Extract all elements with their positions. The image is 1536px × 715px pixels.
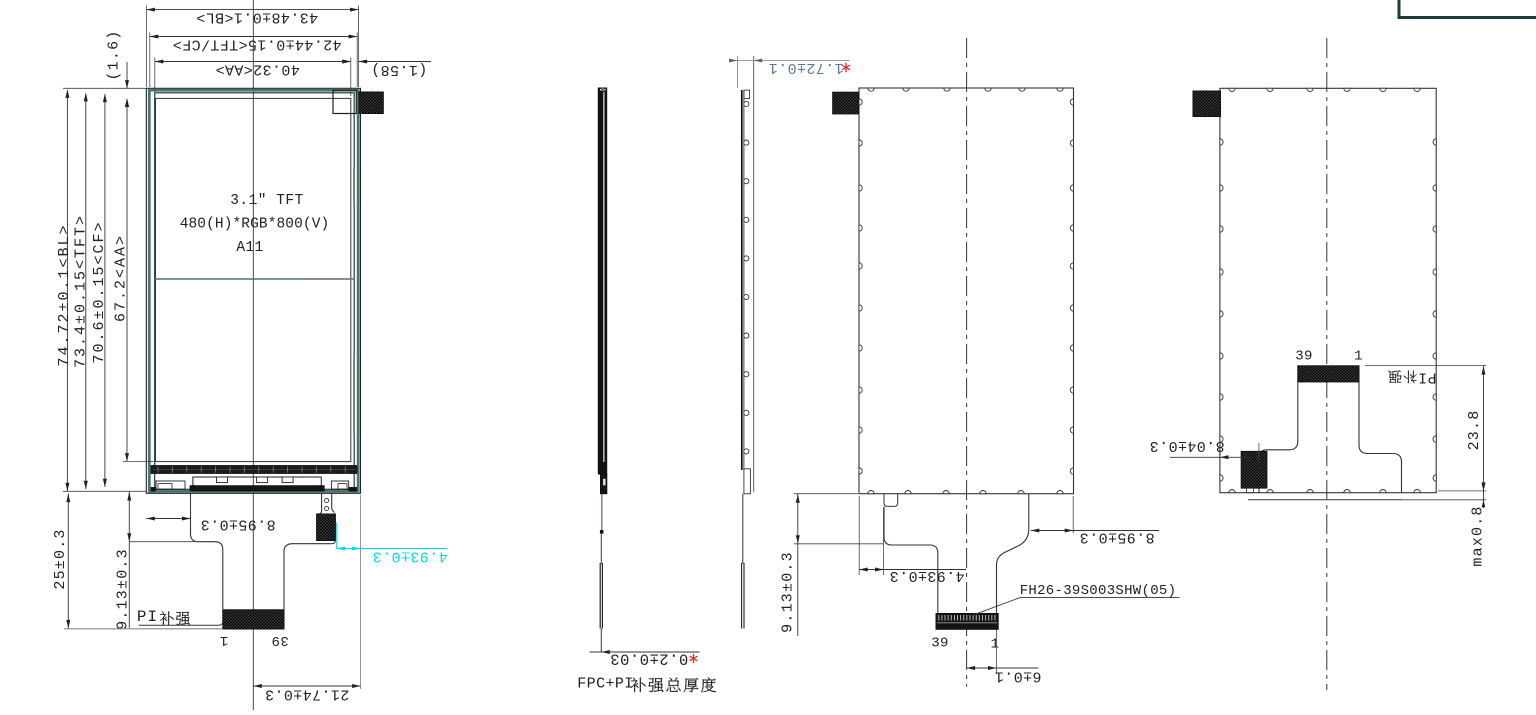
- svg-text:480(H)*RGB*800(V): 480(H)*RGB*800(V): [180, 216, 330, 232]
- svg-text:74.72±0.1<BL>: 74.72±0.1<BL>: [56, 223, 73, 366]
- svg-text:FPC+PI: FPC+PI: [577, 675, 633, 692]
- svg-text:9.13±0.3: 9.13±0.3: [779, 551, 796, 633]
- svg-text:8.95±0.3: 8.95±0.3: [200, 516, 275, 533]
- svg-text:max0.8: max0.8: [1469, 505, 1486, 566]
- svg-text:25±0.3: 25±0.3: [52, 528, 69, 589]
- svg-text:23.8: 23.8: [1466, 410, 1483, 451]
- svg-text:39: 39: [1295, 349, 1313, 365]
- svg-text:FH26-39S003SHW(05): FH26-39S003SHW(05): [1020, 583, 1177, 599]
- svg-text:0.2±0.03: 0.2±0.03: [610, 650, 688, 668]
- svg-text:1: 1: [991, 637, 1000, 653]
- svg-text:(1.6): (1.6): [105, 29, 122, 80]
- svg-text:A11: A11: [236, 240, 263, 256]
- svg-text:PI: PI: [137, 608, 158, 626]
- svg-text:1: 1: [220, 632, 229, 648]
- svg-text:6±0.1: 6±0.1: [994, 667, 1041, 684]
- svg-text:67.2<AA>: 67.2<AA>: [112, 234, 129, 322]
- svg-text:PI: PI: [1418, 369, 1437, 385]
- svg-text:3.1″ TFT: 3.1″ TFT: [230, 193, 304, 209]
- svg-text:4.93±0.3: 4.93±0.3: [889, 567, 964, 584]
- svg-text:(1.58): (1.58): [371, 61, 427, 78]
- svg-text:70.6±0.15<CF>: 70.6±0.15<CF>: [91, 220, 108, 363]
- svg-text:43.48±0.1<BL>: 43.48±0.1<BL>: [196, 8, 318, 25]
- svg-text:8.95±0.3: 8.95±0.3: [1079, 528, 1154, 545]
- svg-text:4.93±0.3: 4.93±0.3: [372, 547, 447, 564]
- svg-text:40.32<AA>: 40.32<AA>: [215, 61, 300, 78]
- svg-text:39: 39: [271, 632, 289, 648]
- svg-text:21.74±0.3: 21.74±0.3: [265, 685, 350, 702]
- svg-text:8.04±0.3: 8.04±0.3: [1149, 437, 1224, 454]
- svg-text:39: 39: [931, 636, 949, 652]
- svg-text:42.44±0.15<TFT/CF>: 42.44±0.15<TFT/CF>: [172, 35, 341, 52]
- svg-text:1: 1: [1354, 349, 1363, 365]
- svg-text:73.4±0.15<TFT>: 73.4±0.15<TFT>: [72, 214, 89, 368]
- svg-text:1.72±0.1: 1.72±0.1: [768, 59, 843, 76]
- svg-text:9.13±0.3: 9.13±0.3: [114, 548, 131, 630]
